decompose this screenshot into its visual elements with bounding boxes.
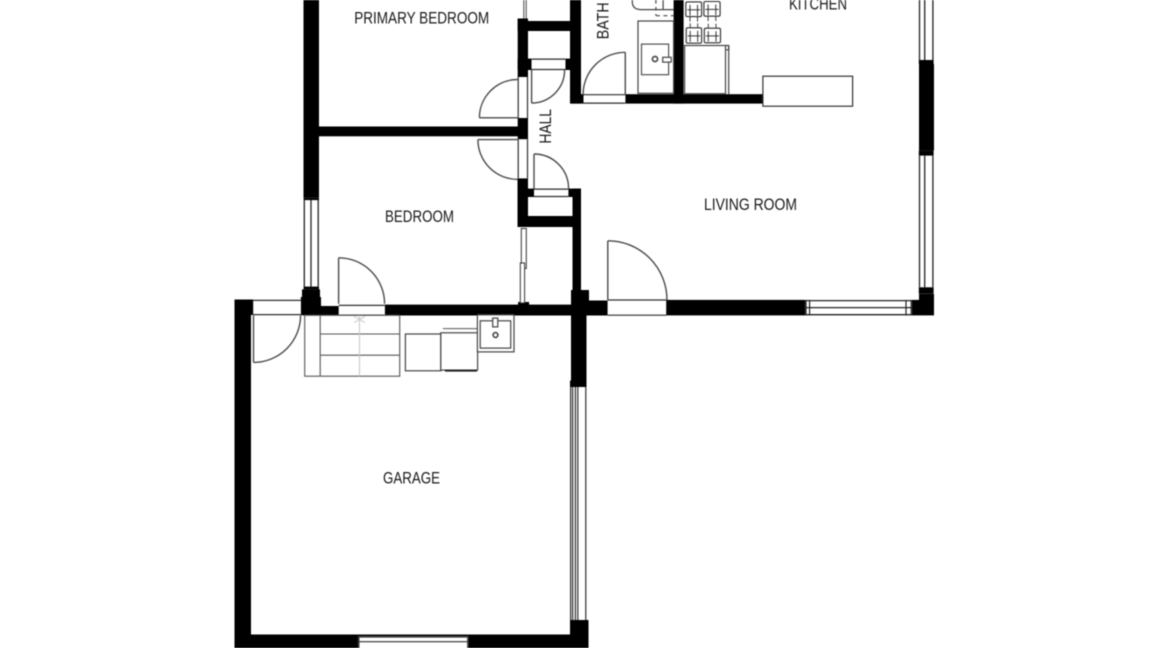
svg-text:HALL: HALL bbox=[537, 109, 555, 144]
svg-text:LIVING ROOM: LIVING ROOM bbox=[704, 196, 797, 214]
svg-text:KITCHEN: KITCHEN bbox=[789, 0, 847, 14]
svg-text:PRIMARY BEDROOM: PRIMARY BEDROOM bbox=[354, 10, 489, 28]
svg-text:BATH: BATH bbox=[594, 2, 612, 39]
svg-text:BEDROOM: BEDROOM bbox=[385, 208, 454, 226]
svg-text:GARAGE: GARAGE bbox=[383, 470, 440, 488]
